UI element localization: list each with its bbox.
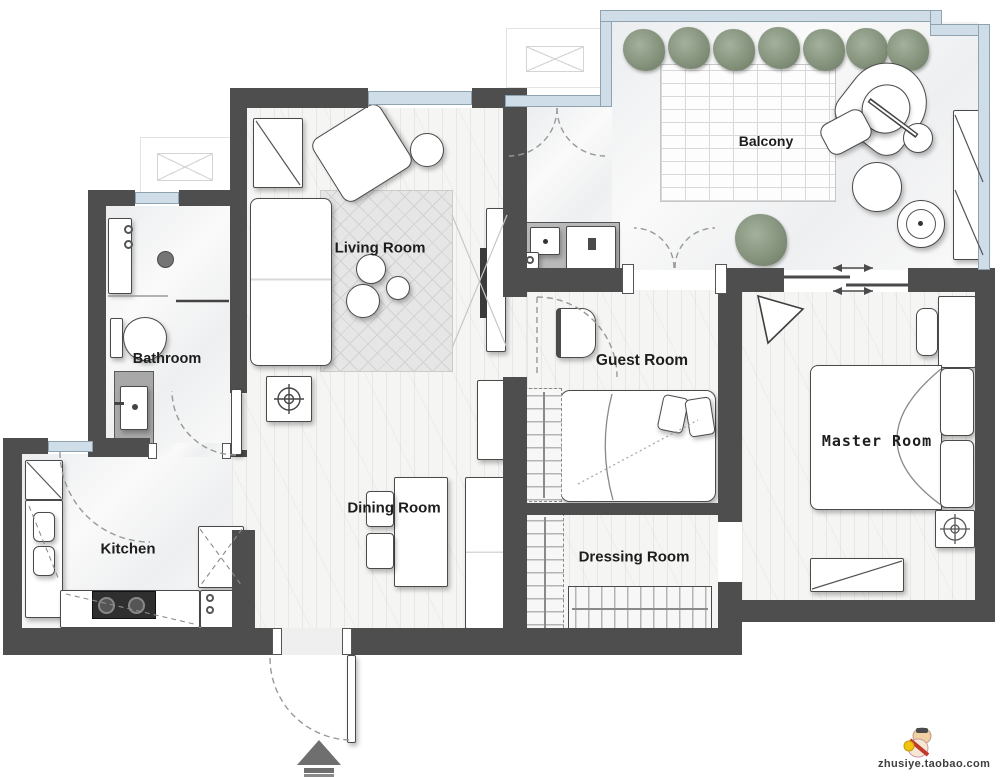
shower-knob-icon (124, 240, 133, 249)
wall (718, 582, 742, 640)
entry-threshold (282, 628, 342, 655)
dressing-wardrobe-bottom (568, 586, 712, 630)
entrance-arrow-icon (297, 740, 341, 765)
faucet-spout-icon (114, 402, 124, 405)
burner-icon (98, 597, 115, 614)
shower-knob-icon (124, 225, 133, 234)
nightstand (938, 296, 976, 368)
door-jamb (272, 628, 282, 655)
wall (472, 88, 505, 108)
entrance-arrow-bar (304, 768, 334, 773)
room-label-bathroom: Bathroom (133, 351, 201, 367)
door-jamb (148, 443, 157, 459)
hedge-plant-icon (623, 29, 665, 71)
tall-cabinet (477, 380, 506, 460)
room-label-dining: Dining Room (347, 500, 440, 517)
balcony-glass-rail (600, 10, 940, 22)
entry-door-leaf (347, 655, 356, 743)
fridge-knob-icon (206, 594, 214, 602)
toilet-tank (110, 318, 123, 358)
planter-dot (918, 221, 923, 226)
room-label-balcony: Balcony (739, 133, 793, 149)
wall (503, 88, 527, 297)
wall (3, 628, 255, 655)
watermark-mascot-icon (898, 724, 942, 760)
shower-drain-icon (157, 251, 174, 268)
hedge-plant-icon (758, 27, 800, 69)
corner-cabinet (25, 460, 63, 500)
table-lamp (916, 308, 938, 356)
balcony-glass-rail (978, 24, 990, 270)
side-table (410, 133, 444, 167)
room-label-dressing: Dressing Room (579, 549, 690, 566)
fridge-knob-icon (206, 606, 214, 614)
dining-chair (366, 533, 394, 569)
tv-icon (480, 248, 487, 318)
room-label-kitchen: Kitchen (100, 541, 155, 558)
wall (527, 503, 742, 515)
watermark-text: zhusiye.taobao.com (878, 758, 990, 770)
egg-chair-base (903, 123, 933, 153)
dining-table (394, 477, 448, 587)
floor-plan: Living Room Balcony Bathroom Kitchen Din… (0, 0, 1000, 777)
wall (88, 190, 106, 457)
wall (3, 438, 48, 454)
room-label-living: Living Room (335, 240, 426, 257)
wall (727, 268, 784, 292)
wall (718, 292, 742, 522)
door-jamb (222, 443, 231, 459)
wall (230, 88, 247, 190)
faucet-icon (132, 404, 138, 410)
sink-basin (33, 512, 55, 542)
sofa (250, 198, 332, 366)
room-label-master: Master Room (822, 432, 932, 450)
washer-icon (588, 238, 596, 250)
ac-outdoor-unit-icon (157, 153, 213, 181)
pillow (940, 368, 974, 436)
coffee-table (386, 276, 410, 300)
floor-kitchen-passage (150, 443, 230, 457)
door-jamb (342, 628, 352, 655)
bench (810, 558, 904, 592)
window-living (368, 91, 472, 105)
balcony-round-table (852, 162, 902, 212)
potted-plant-icon (735, 214, 787, 266)
wall (527, 268, 634, 292)
balcony-glass-rail (600, 10, 612, 107)
living-side-cabinet (253, 118, 303, 188)
hedge-plant-icon (803, 29, 845, 71)
hedge-plant-icon (668, 27, 710, 69)
guest-wardrobe (524, 388, 562, 502)
wall (742, 600, 995, 622)
laundry-knob-icon (526, 256, 534, 264)
utility-sink-drain-icon (543, 239, 548, 244)
pillow (940, 440, 974, 508)
wall (255, 628, 272, 655)
wall (88, 190, 135, 206)
sink-basin (33, 546, 55, 576)
coffee-table (356, 254, 386, 284)
door-jamb (715, 264, 727, 294)
wall (3, 438, 22, 655)
window-kitchen (48, 441, 93, 452)
living-area-rug (320, 190, 453, 372)
balcony-glass-rail (505, 95, 605, 107)
coffee-table (346, 284, 380, 318)
sideboard-cabinet (465, 477, 505, 629)
wall (230, 190, 247, 393)
hedge-plant-icon (713, 29, 755, 71)
burner-icon (128, 597, 145, 614)
door-jamb (622, 264, 634, 294)
wall (975, 270, 995, 622)
window-bathroom (135, 192, 179, 204)
ac-outdoor-unit-icon (526, 46, 584, 72)
dressing-wardrobe-left (524, 513, 564, 638)
desk-chair (556, 308, 596, 358)
wall (93, 438, 150, 454)
ac-unit (935, 510, 975, 548)
round-fan (266, 376, 312, 422)
bathroom-door-leaf (231, 389, 242, 455)
room-label-guest: Guest Room (596, 352, 688, 370)
wall (503, 377, 527, 650)
wall (352, 628, 742, 655)
wall (232, 530, 255, 628)
wall (232, 88, 368, 108)
